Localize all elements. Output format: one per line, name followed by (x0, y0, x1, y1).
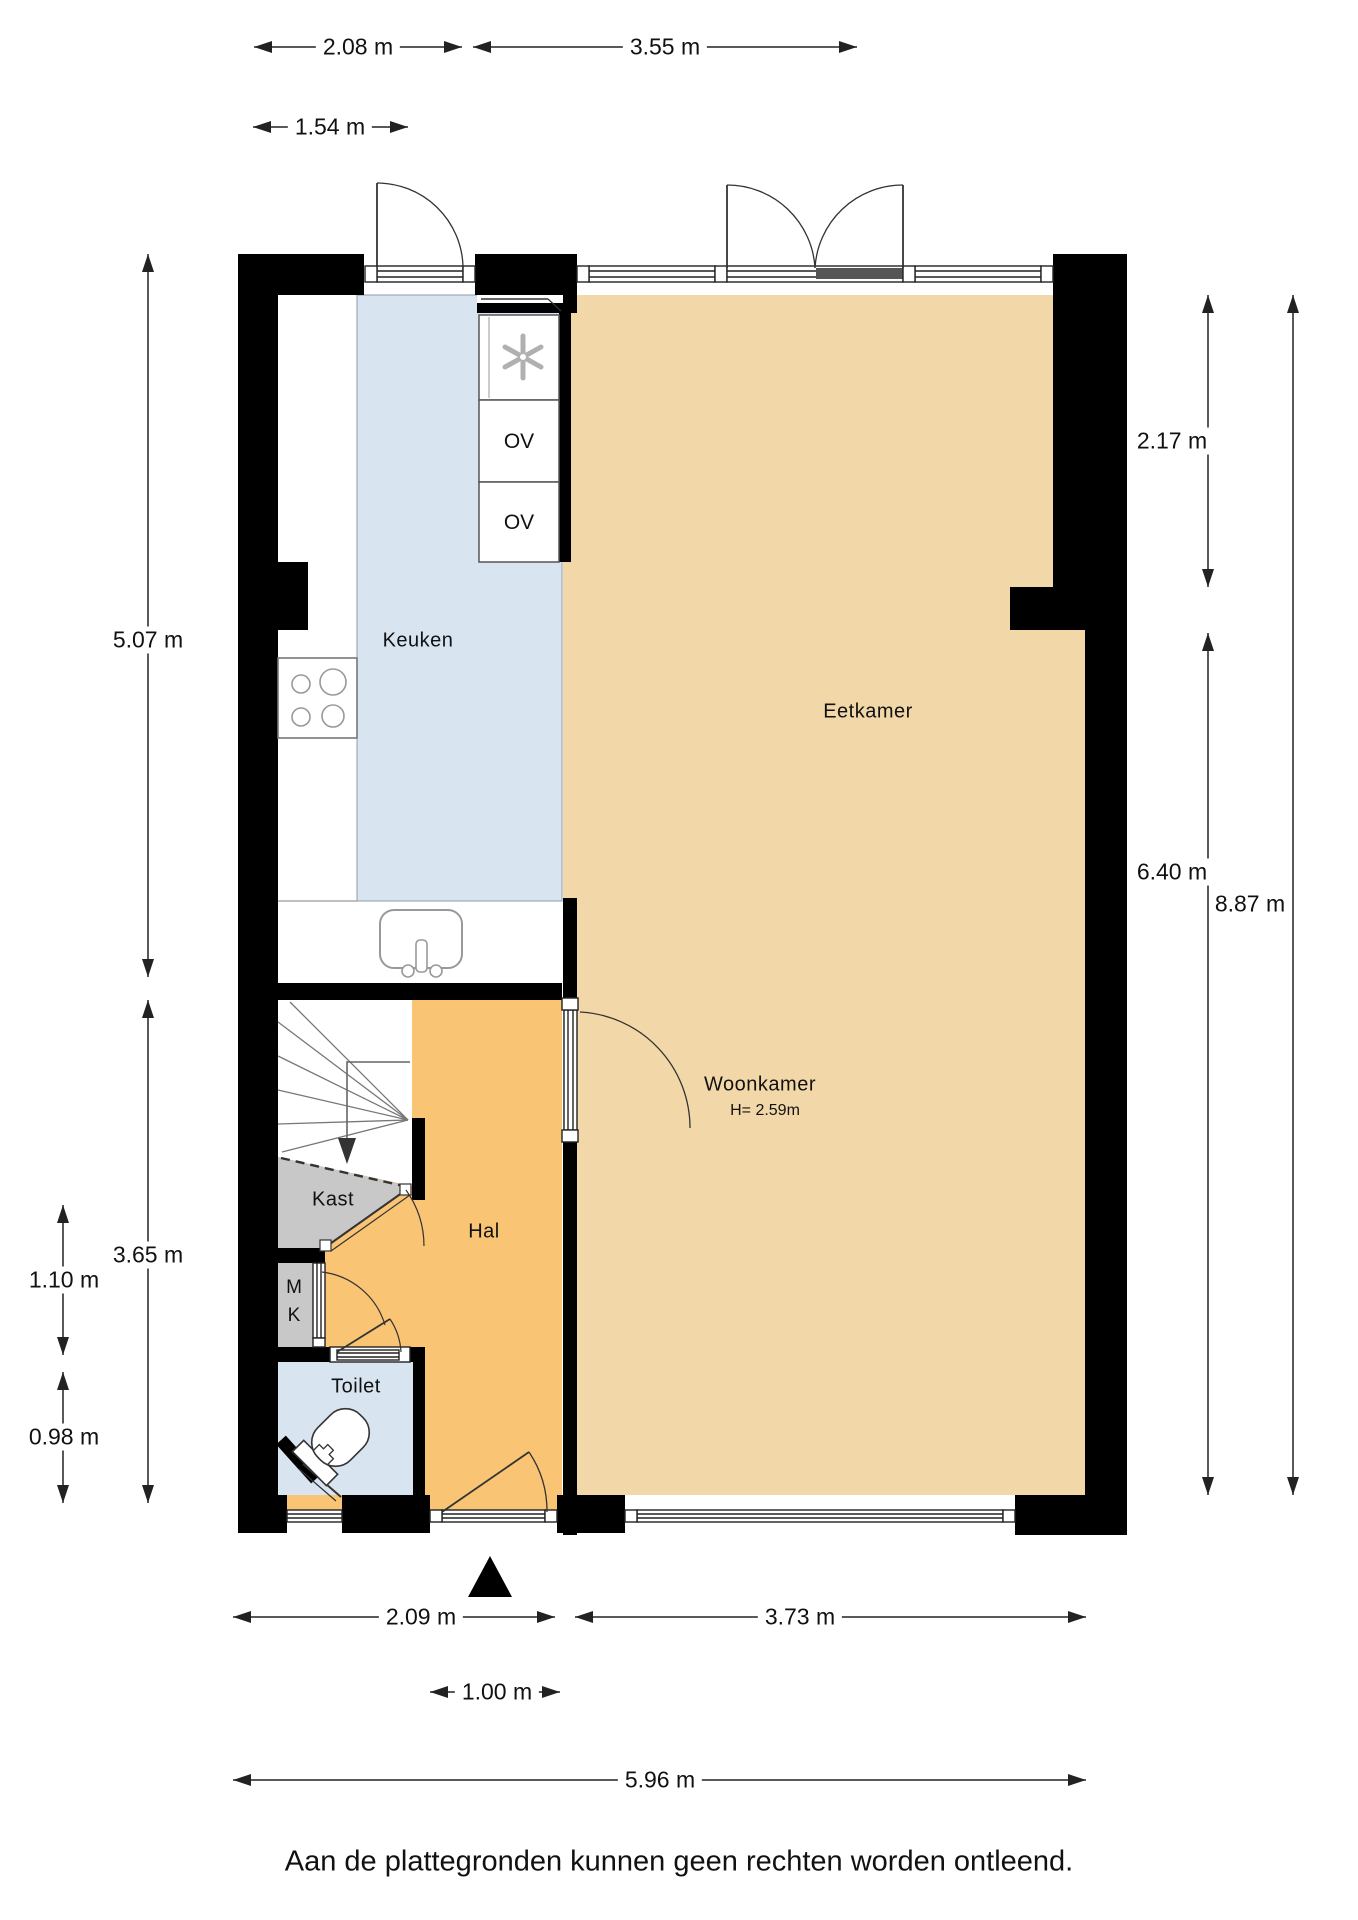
living-dining-floor (563, 295, 1085, 1495)
wall-left (238, 254, 278, 1533)
wall-right-upper (1053, 254, 1127, 630)
dim-label-bottom-right: 3.73 m (758, 1604, 842, 1631)
room-label-woonkamer: Woonkamer (704, 1074, 816, 1097)
dim-label-right-bay: 2.17 m (1133, 428, 1211, 455)
dim-label-top-inner: 1.54 m (288, 114, 372, 141)
wall-stair-stub (412, 1118, 425, 1200)
extractor-fan-box (479, 315, 559, 400)
door-jamb (365, 266, 377, 282)
wall-bottom-mid1 (342, 1495, 430, 1533)
dim-label-bottom-left: 2.09 m (379, 1604, 463, 1631)
window-top-right (915, 266, 1041, 282)
wall-bottom-left (238, 1495, 287, 1533)
wall-hall-living-lower (563, 1142, 577, 1535)
window-top-left (589, 266, 715, 282)
dim-label-left-closet: 1.10 m (22, 1267, 106, 1294)
footer-disclaimer: Aan de plattegronden kunnen geen rechten… (285, 1846, 1073, 1879)
room-label-eetkamer: Eetkamer (823, 701, 913, 724)
wall-bottom-mid2 (557, 1495, 625, 1533)
sink-icon (380, 910, 462, 977)
dim-label-top-right: 3.55 m (623, 34, 707, 61)
wall-right-lower (1085, 630, 1127, 1535)
wall-mk-bottom (238, 1347, 325, 1362)
wall-toilet-hall (413, 1362, 425, 1510)
room-label-hal: Hal (468, 1221, 500, 1244)
room-label-kast: Kast (312, 1189, 354, 1212)
hall-glazed-door (564, 1010, 577, 1130)
floor-fills (278, 295, 1085, 1510)
floorplan-drawing (0, 0, 1358, 1920)
wall-left-pilaster (278, 562, 308, 630)
dim-label-left-toilet: 0.98 m (22, 1424, 106, 1451)
floorplan-page: 2.08 m 3.55 m 1.54 m 5.07 m 3.65 m 1.10 … (0, 0, 1358, 1920)
wall-kitchen-dining (559, 313, 571, 562)
dim-label-left-lower: 3.65 m (106, 1242, 190, 1269)
cooktop-icon (278, 658, 357, 738)
wall-top-pier (475, 254, 577, 295)
toilet-window (287, 1510, 342, 1522)
room-label-mk-m: M (286, 1275, 302, 1301)
wall-closet-bottom (238, 1248, 325, 1263)
dim-label-right-lower: 6.40 m (1133, 859, 1211, 886)
dim-label-left-upper: 5.07 m (106, 627, 190, 654)
room-label-toilet: Toilet (331, 1376, 381, 1399)
wall-bottom-right (1015, 1495, 1127, 1535)
dark-sill (816, 268, 903, 279)
room-label-mk-k: K (288, 1303, 301, 1329)
room-label-keuken: Keuken (383, 630, 454, 653)
dim-label-right-total: 8.87 m (1211, 891, 1289, 918)
room-label-ceiling-height: H= 2.59m (730, 1102, 800, 1120)
door-jamb (463, 266, 475, 282)
french-doors (727, 185, 903, 268)
oven-label-top: OV (504, 430, 534, 454)
mk-door (313, 1263, 325, 1338)
dim-label-top-left: 2.08 m (316, 34, 400, 61)
window-bottom-living (637, 1510, 1003, 1522)
oven-label-bottom: OV (504, 511, 534, 535)
wall-right-step (1010, 587, 1127, 630)
kitchen-door (377, 183, 463, 266)
wall-hall-living-upper (563, 898, 577, 998)
front-door-threshold (442, 1510, 545, 1522)
dim-label-bottom-door: 1.00 m (455, 1679, 539, 1706)
dim-label-bottom-total: 5.96 m (618, 1767, 702, 1794)
entrance-triangle-icon (468, 1556, 512, 1597)
wall-kitchen-hall (238, 983, 562, 1000)
